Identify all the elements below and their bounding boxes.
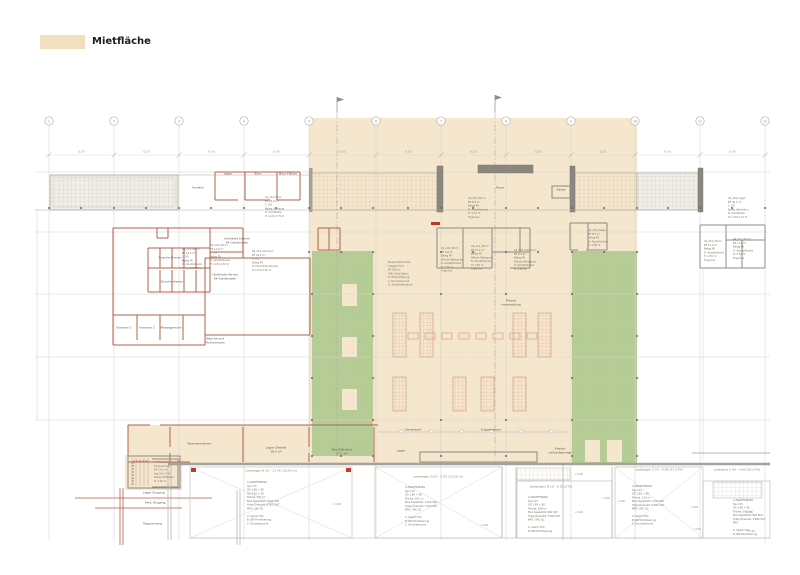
annotation-block: 44_210_Büro BF 24.0 m² 1. OG Belag Linol… (265, 196, 284, 219)
bay-header: Lastwagen B 10 - 11 AC (16.50 m) (221, 469, 321, 473)
room-label-lager-gewoelbe: Lager Gewölb 18.0 m² (251, 446, 301, 454)
annotation-block: 44_223_Duschen BF 18.4 m² 1. UG Belag PU… (252, 250, 278, 273)
svg-text:6.50: 6.50 (78, 150, 84, 154)
bay-body: 4 ANLIEFERUNG Spur 02 QS 1.80 + 80 Fläch… (405, 486, 437, 527)
room-label-kuppelrampe: Kuppelrampe (466, 428, 516, 432)
svg-text:12: 12 (763, 119, 767, 123)
room-label-lager-klein: Lager (376, 449, 426, 453)
annotation-block: 44_300_Lager BF 42.1 m² 1. UG Belag Hart… (728, 197, 749, 220)
room-label-foyer: Foyer (475, 186, 525, 190)
bay-header: Lastwagen N 10 - S 20 (270) (501, 485, 601, 489)
annotation-block: 44_221_WC D BF 11.2 m² 1. UG Belag PU D:… (182, 248, 202, 271)
annotation-block: 44_311_WC H BF 11.6 m² Belag PU D: Akust… (733, 238, 753, 261)
annotation-block: 44_230_Kasse BF 8.5 m² Belag PU D: Akust… (588, 229, 608, 248)
annotation-block: 44_241_WC D BF 10.4 m² Belag PU Wände We… (471, 245, 493, 271)
annotation-block: Messe Multimedia Anlage Front BF 126 m² … (388, 261, 412, 287)
level-mark: « 0.00 (480, 524, 488, 527)
room-label-warenannahme: Warenannahme (174, 442, 224, 446)
red-marker (431, 222, 440, 225)
room-label-treppe: Treppenhaus (143, 522, 162, 526)
svg-text:8: 8 (505, 119, 507, 123)
room-label-umkleide-herren: Umkleide Herren 64 Garderoben (200, 273, 250, 281)
room-label-box-pallisierie: Box Pallisierie 27.7 m² (317, 448, 367, 456)
annotation-block: 44_240_WC H BF 9.8 m² Belag PU Wände Wei… (441, 247, 463, 273)
svg-text:10: 10 (633, 119, 637, 123)
legend-swatch-mietflaeche (40, 35, 85, 49)
level-mark: « 0.00 (617, 500, 625, 503)
bay-header: Lastwagen N 10 - S 20 (12.50 m) (388, 475, 488, 479)
floor-plan-drawing: 6.50 6.50 6.50 6.50 6.50 6.50 6.50 6.50 … (0, 0, 800, 575)
svg-text:6.50: 6.50 (664, 150, 670, 154)
svg-text:6.50: 6.50 (208, 150, 214, 154)
svg-text:1: 1 (48, 119, 50, 123)
bay-body: 4 ANLIEFERUNG Spur 04 QS 1.80 + 80 Fläch… (632, 485, 664, 526)
bay-header: Lastwand S 04 - 4.00 (20.5 PS) (687, 468, 787, 472)
bay-body: 4 ANLIEFERUNG Spur 01 QS 1.80 + 80 QS 4.… (247, 481, 279, 526)
room-label-fleisch: Fleisch verarbeitung (486, 299, 536, 307)
svg-text:9: 9 (570, 119, 572, 123)
svg-text:6.50: 6.50 (470, 150, 476, 154)
floor-plan-sheet: 6.50 6.50 6.50 6.50 6.50 6.50 6.50 6.50 … (0, 0, 800, 575)
annotation-block: 44_310_WC D BF 11.0 m² Belag PU D: Akust… (704, 240, 724, 263)
svg-text:6.50: 6.50 (405, 150, 411, 154)
level-mark: « 0.00 (745, 511, 753, 514)
room-label-vordach: Vordach (173, 186, 223, 190)
svg-text:6.50: 6.50 (535, 150, 541, 154)
level-mark: « 0.00 (690, 506, 698, 509)
svg-text:5: 5 (308, 119, 310, 123)
svg-text:2: 2 (113, 119, 115, 123)
bay-body: 4 ANLIEFERUNG Spur 03 QS 1.80 + 80 Fläch… (528, 496, 560, 534)
room-label-pers-eingang: Pers. Eingang (145, 501, 165, 505)
room-label-lager-eingang: Lager Eingang (143, 491, 165, 495)
room-label-kasse: Kasse (536, 188, 586, 192)
legend-label: Mietfläche (92, 36, 151, 47)
svg-text:4: 4 (243, 119, 245, 123)
level-mark: « 0.00 (333, 503, 341, 506)
svg-text:6.50: 6.50 (339, 150, 345, 154)
annotation-block: 44_242_Putzraum BF 6.2 m² Belag PU Wände… (514, 249, 536, 272)
room-label-waesche: Wäsche und Trockenraum (190, 337, 240, 345)
level-mark: « 0.00 (575, 473, 583, 476)
svg-text:7: 7 (440, 119, 442, 123)
svg-text:6: 6 (375, 119, 377, 123)
svg-text:3: 3 (178, 119, 180, 123)
level-mark: « 0.00 (693, 528, 701, 531)
room-label-buero-flaeche: Büro Fläche (263, 172, 313, 176)
annotation-block: 44_222_WC H BF 12.6 m² 1. UG Belag PU D:… (210, 244, 230, 267)
room-label-massage: Massageraum (146, 326, 196, 330)
svg-text:6.50: 6.50 (143, 150, 149, 154)
level-mark: « 0.00 (747, 530, 755, 533)
annotation-block-stairs: 44_TH_West Treppenhaus BF 14.2 m² Stg 18… (154, 461, 175, 484)
level-mark: « 0.00 (602, 497, 610, 500)
level-mark: « 0.00 (575, 511, 583, 514)
svg-text:11: 11 (698, 119, 702, 123)
room-label-dusche-herren: Dusche Herren (147, 280, 197, 284)
svg-text:6.50: 6.50 (729, 150, 735, 154)
annotation-block: 44_250_WC G BF 8.8 m² Belag PU D: Akusti… (468, 197, 488, 220)
svg-text:6.50: 6.50 (273, 150, 279, 154)
room-label-vorverkauf: Vorverkauf (388, 428, 438, 432)
room-label-kleider: Kleider verkaufsanlage (535, 447, 585, 455)
svg-text:6.50: 6.50 (600, 150, 606, 154)
